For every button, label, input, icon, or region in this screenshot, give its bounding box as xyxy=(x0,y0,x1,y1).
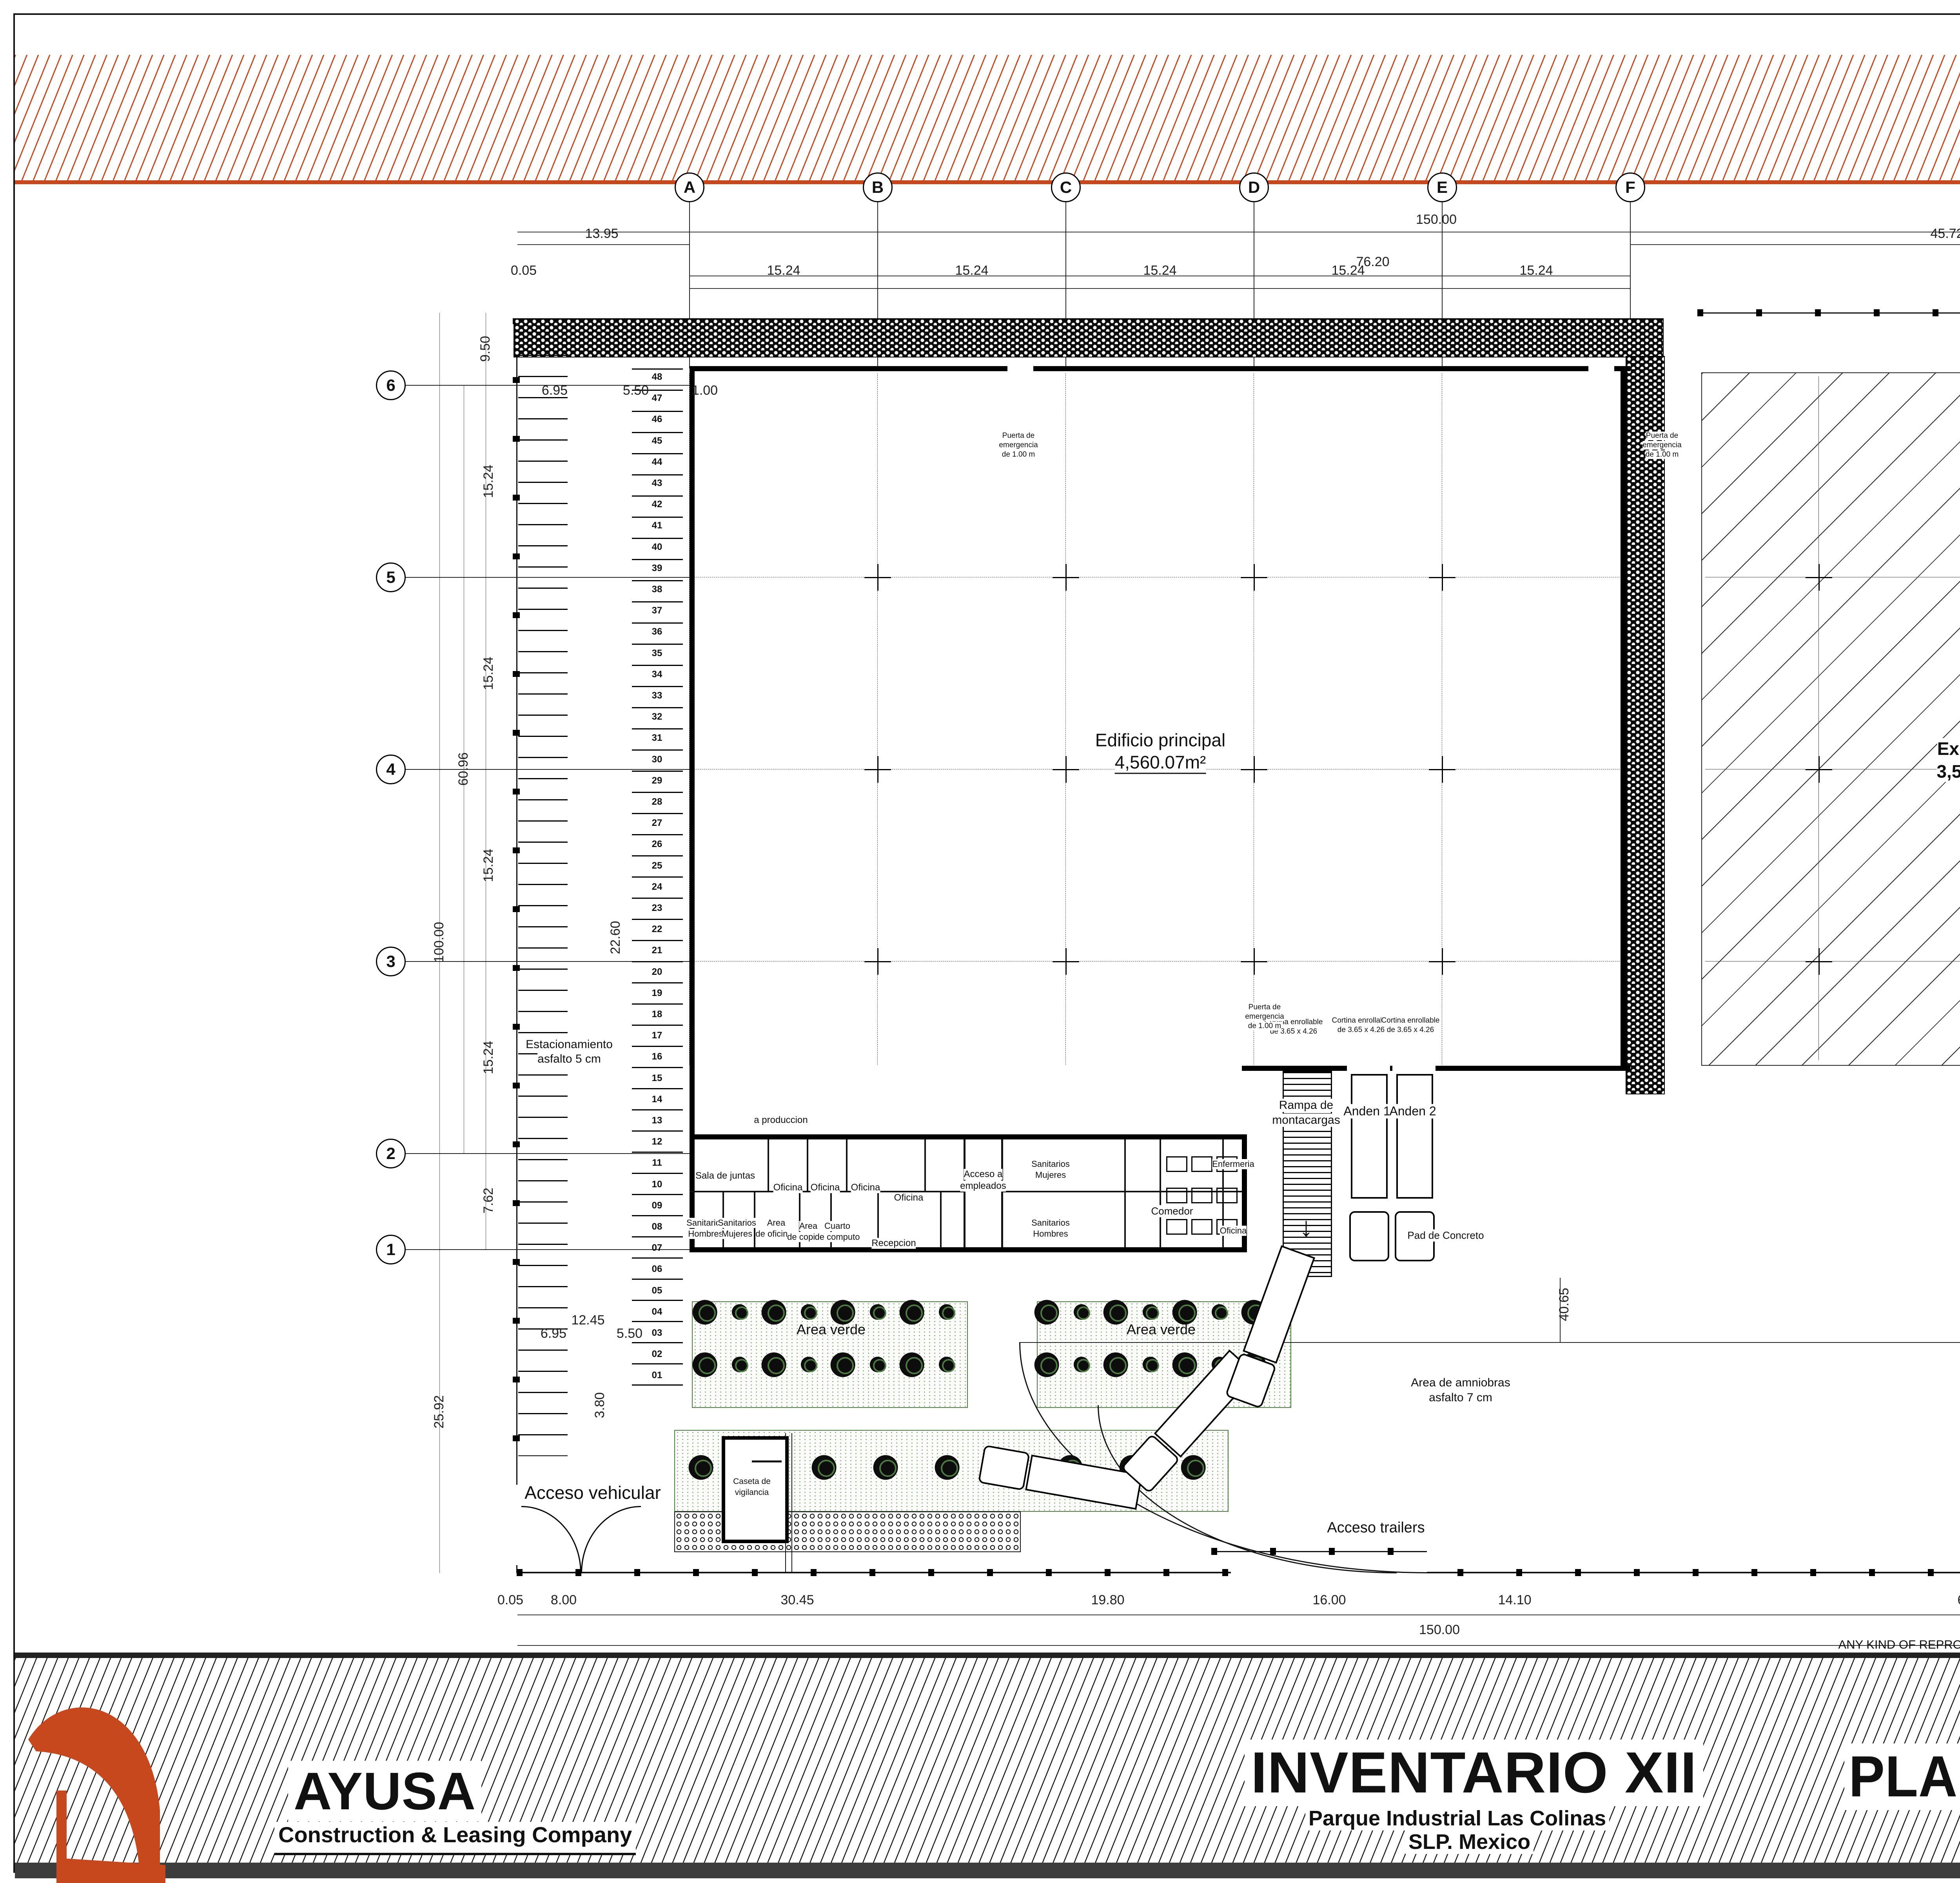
room-reception: Recepcion xyxy=(871,1238,916,1249)
tree-ring-icon xyxy=(942,1359,955,1372)
grid-line xyxy=(791,1433,792,1572)
dimension-label: 5.50 xyxy=(617,1327,642,1340)
room-office: Oficina xyxy=(894,1192,924,1203)
dimension-label: 15.24 xyxy=(482,1041,495,1074)
emergency-door-label-2: emergencia xyxy=(999,441,1038,450)
dining-table xyxy=(1191,1156,1212,1172)
parking-stall-number: 34 xyxy=(652,669,662,680)
parking-stall-number: 31 xyxy=(652,733,662,744)
gravel-band-east xyxy=(1626,356,1665,1094)
parking-stall-number: 10 xyxy=(652,1179,662,1190)
gravel-band-top xyxy=(514,318,1664,357)
parking-stall-number: 09 xyxy=(652,1200,662,1211)
expansion-area-value: 3,554.70m² xyxy=(1936,761,1960,782)
dining-table xyxy=(1166,1156,1187,1172)
grid-line xyxy=(768,1139,769,1192)
emergency-door-label-3: de 1.00 m xyxy=(1248,1022,1281,1030)
parking-stall-number: 15 xyxy=(652,1073,662,1084)
concrete-pad-label: Pad de Concreto xyxy=(1407,1230,1484,1242)
grid-line xyxy=(486,313,486,1250)
employee-access-2: empleados xyxy=(960,1181,1006,1192)
rollup-door-label-1: Cortina enrollable xyxy=(1381,1016,1440,1025)
drawing-title: PLANTA ARQUITECTONICA xyxy=(1844,1743,1960,1810)
tree-ring-icon xyxy=(906,1357,923,1374)
room-office-2: Oficina xyxy=(1220,1226,1247,1236)
parking-stall-number: 35 xyxy=(652,648,662,659)
parking-stall-number: 22 xyxy=(652,924,662,935)
drawing-sheet: ABCDEF654321Edificio principal4,560.07m²… xyxy=(0,0,1960,1883)
tree-ring-icon xyxy=(873,1306,886,1320)
dimension-label: 40.65 xyxy=(1557,1288,1571,1321)
emergency-door-label-2: emergencia xyxy=(1642,441,1681,450)
tree-ring-icon xyxy=(906,1304,923,1322)
grid-line xyxy=(517,244,690,245)
grid-line xyxy=(1160,1139,1161,1247)
parking-stall-number: 42 xyxy=(652,499,662,510)
grid-line xyxy=(1630,244,1960,245)
wall-office-bottom xyxy=(690,1247,1247,1252)
emergency-door-label-2: emergencia xyxy=(1245,1012,1284,1021)
door-gap xyxy=(1007,366,1033,371)
parking-stall-number: 06 xyxy=(652,1264,662,1275)
grid-line xyxy=(1001,1139,1003,1247)
dimension-label: 3.80 xyxy=(593,1392,606,1418)
grid-row-bubble-2: 2 xyxy=(376,1139,406,1168)
parking-stall-number: 25 xyxy=(652,860,662,871)
dimension-label: 7.62 xyxy=(482,1188,495,1214)
parking-stall-band-west xyxy=(518,355,568,1456)
ramp-arrow: ↓ xyxy=(1299,1211,1313,1243)
tree-ring-icon xyxy=(735,1359,748,1372)
ayusa-logo xyxy=(20,1681,189,1883)
dimension-label: 0.05 xyxy=(511,264,537,277)
guard-house-label-2: vigilancia xyxy=(735,1488,769,1497)
grid-row-bubble-6: 6 xyxy=(376,370,406,400)
maneuver-label-2: asfalto 7 cm xyxy=(1429,1391,1492,1404)
grid-line xyxy=(1705,961,1960,961)
grid-line xyxy=(690,288,1630,289)
parking-stall-number: 39 xyxy=(652,563,662,574)
dimension-label: 19.80 xyxy=(1091,1593,1124,1607)
room-dining: Comedor xyxy=(1151,1205,1193,1217)
dimension-label: 6.95 xyxy=(542,384,568,397)
parking-stall-number: 08 xyxy=(652,1221,662,1232)
parking-stall-number: 24 xyxy=(652,882,662,893)
dimension-label: 15.24 xyxy=(1143,264,1176,277)
grid-line xyxy=(517,1615,1960,1615)
grid-line xyxy=(1124,1139,1126,1247)
grid-column-bubble-F: F xyxy=(1615,172,1645,202)
tree-ring-icon xyxy=(879,1460,897,1477)
fence-gap xyxy=(510,1485,523,1565)
room-wc-women-2-1: Sanitarios xyxy=(1031,1159,1070,1169)
dimension-label: 15.24 xyxy=(767,264,800,277)
parking-stall-number: 16 xyxy=(652,1051,662,1062)
dimension-label: 150.00 xyxy=(1419,1623,1460,1636)
room-wc-women-2-2: Mujeres xyxy=(1035,1170,1066,1180)
truck-trailer xyxy=(1351,1074,1388,1199)
room-wc-women-1: Sanitarios xyxy=(718,1218,756,1228)
dimension-label: 16.00 xyxy=(1312,1593,1346,1607)
parking-stall-number: 20 xyxy=(652,967,662,978)
parking-stall-number: 05 xyxy=(652,1285,662,1296)
parking-stall-number: 36 xyxy=(652,626,662,637)
dock2-label: Anden 2 xyxy=(1389,1104,1436,1119)
grid-row-bubble-3: 3 xyxy=(376,947,406,976)
dimension-label: 15.24 xyxy=(955,264,988,277)
truck-cab xyxy=(978,1445,1030,1491)
room-copy-1: Area xyxy=(799,1221,817,1231)
parking-stall-number: 07 xyxy=(652,1243,662,1254)
emergency-door-label-1: Puerta de xyxy=(1249,1003,1281,1012)
parking-stall-number: 13 xyxy=(652,1115,662,1126)
dimension-label: 100.00 xyxy=(432,922,446,963)
grid-line xyxy=(924,1139,926,1192)
project-location-1: Parque Industrial Las Colinas xyxy=(1305,1806,1609,1830)
dock-opening xyxy=(1347,1066,1390,1071)
grid-line xyxy=(1705,577,1960,577)
confidential-text: ANY KIND OF REPRODUCTION, COPY AND/OR DI… xyxy=(1838,1638,1960,1652)
parking-stall-number: 14 xyxy=(652,1094,662,1105)
emergency-door-label-1: Puerta de xyxy=(1002,432,1034,440)
parking-stall-number: 32 xyxy=(652,711,662,722)
tree-ring-icon xyxy=(768,1357,785,1374)
room-wc-men-2-1: Sanitarios xyxy=(1031,1218,1070,1228)
expansion-name: Expansion xyxy=(1937,738,1960,759)
wall-office-top xyxy=(690,1134,1247,1139)
maneuver-label-1: Area de amniobras xyxy=(1411,1376,1510,1390)
grid-line xyxy=(807,1139,808,1192)
parking-stall-number: 29 xyxy=(652,775,662,786)
tree-ring-icon xyxy=(837,1357,854,1374)
parking-stall-number: 18 xyxy=(652,1009,662,1020)
parking-stall-number: 37 xyxy=(652,605,662,616)
dock1-label: Anden 1 xyxy=(1343,1104,1390,1119)
parking-stall-number: 47 xyxy=(652,393,662,404)
parking-stall-number: 38 xyxy=(652,584,662,595)
room-computer-1: Cuarto xyxy=(824,1221,850,1231)
room-office: Oficina xyxy=(851,1182,880,1193)
room-meeting: Sala de juntas xyxy=(695,1170,755,1181)
parking-stall-number: 44 xyxy=(652,457,662,468)
tree-ring-icon xyxy=(699,1357,716,1374)
guard-house-label-1: Caseta de xyxy=(733,1477,771,1486)
grid-column-bubble-D: D xyxy=(1239,172,1269,202)
wall-west xyxy=(690,366,695,1252)
room-wc-men-2-2: Hombres xyxy=(1033,1229,1068,1239)
tree-ring-icon xyxy=(699,1304,716,1322)
dimension-label: 25.92 xyxy=(432,1395,446,1428)
parking-stall-number: 33 xyxy=(652,690,662,701)
dimension-label: 60.96 xyxy=(457,752,470,785)
rollup-door-label-2: de 3.65 x 4.26 xyxy=(1338,1026,1385,1034)
parking-label-1: Estacionamiento xyxy=(526,1038,613,1051)
grid-line xyxy=(940,1192,942,1247)
truck-cab xyxy=(1349,1211,1389,1261)
title-block-bottom-bar xyxy=(15,1863,1960,1878)
grid-row-bubble-5: 5 xyxy=(376,562,406,592)
parking-stall-number: 11 xyxy=(652,1157,662,1168)
project-location-2: SLP. Mexico xyxy=(1405,1830,1534,1854)
dimension-label: 15.24 xyxy=(1519,264,1553,277)
tree-ring-icon xyxy=(695,1460,712,1477)
parking-stall-number: 17 xyxy=(652,1030,662,1041)
parking-stall-number: 45 xyxy=(652,435,662,446)
dimension-label: 45.72 xyxy=(1930,227,1960,240)
parking-stall-number: 27 xyxy=(652,818,662,829)
room-computer-2: de computo xyxy=(815,1232,860,1242)
parking-stall-number: 23 xyxy=(652,903,662,914)
main-building-name: Edificio principal xyxy=(1095,729,1225,751)
tree-ring-icon xyxy=(735,1306,748,1320)
dimension-label: 12.45 xyxy=(571,1313,604,1327)
dimension-label: 61.60 xyxy=(1957,1593,1960,1607)
tree-ring-icon xyxy=(804,1359,817,1372)
truck-trailer xyxy=(1396,1074,1433,1199)
dimension-label: 15.24 xyxy=(482,657,495,690)
door-gap xyxy=(1588,366,1614,371)
parking-stall-number: 02 xyxy=(652,1349,662,1360)
parking-stall-number: 46 xyxy=(652,414,662,425)
parking-stall-number: 19 xyxy=(652,988,662,999)
tree-ring-icon xyxy=(768,1304,785,1322)
grid-column-bubble-E: E xyxy=(1427,172,1457,202)
ayusa-logo-swoosh xyxy=(28,1707,160,1883)
dining-table xyxy=(1216,1188,1238,1203)
dimension-label: 1.00 xyxy=(692,384,718,397)
parking-stall-number: 43 xyxy=(652,478,662,489)
wall-north xyxy=(690,366,1630,371)
ramp-label-2: montacargas xyxy=(1272,1114,1340,1127)
parking-stall-number: 03 xyxy=(652,1328,662,1339)
tree-ring-icon xyxy=(941,1460,958,1477)
grid-line xyxy=(694,577,1626,577)
room-wc-women-2: Mujeres xyxy=(722,1229,752,1239)
parking-stall-number: 41 xyxy=(652,520,662,531)
title-separator xyxy=(15,1653,1960,1658)
dimension-label: 15.24 xyxy=(1331,264,1365,277)
to-production-label: a produccion xyxy=(754,1115,808,1126)
grid-line xyxy=(846,1139,848,1192)
room-office: Oficina xyxy=(773,1182,803,1193)
wall-dock-south xyxy=(1242,1066,1630,1071)
parking-stall-number: 01 xyxy=(652,1370,662,1381)
dimension-label: 15.24 xyxy=(482,464,495,498)
tree-ring-icon xyxy=(942,1306,955,1320)
grid-row-bubble-1: 1 xyxy=(376,1235,406,1264)
room-infirmary: Enfermeria xyxy=(1212,1159,1254,1169)
trailer-access-label: Acceso trailers xyxy=(1327,1520,1425,1537)
dining-table xyxy=(1191,1188,1212,1203)
dimension-label: 9.50 xyxy=(479,336,492,362)
dining-table xyxy=(1166,1219,1187,1235)
vehicle-access-label: Acceso vehicular xyxy=(524,1482,661,1503)
tree-ring-icon xyxy=(837,1304,854,1322)
parking-stall-number: 04 xyxy=(652,1306,662,1317)
room-wc-men-2: Hombres xyxy=(688,1229,723,1239)
employee-access-1: Acceso a xyxy=(964,1169,1003,1180)
grid-column-bubble-A: A xyxy=(675,172,704,202)
tree-ring-icon xyxy=(804,1306,817,1320)
parking-stall-number: 30 xyxy=(652,754,662,765)
grid-row-bubble-4: 4 xyxy=(376,755,406,784)
emergency-door-label-1: Puerta de xyxy=(1646,432,1678,440)
tree-ring-icon xyxy=(1077,1306,1090,1320)
tree-ring-icon xyxy=(1040,1304,1058,1322)
parking-stall-number: 12 xyxy=(652,1136,662,1147)
dimension-label: 8.00 xyxy=(551,1593,577,1607)
tree-ring-icon xyxy=(1178,1304,1196,1322)
grid-line xyxy=(694,961,1626,961)
parking-stall-number: 21 xyxy=(652,945,662,956)
dock-opening xyxy=(1392,1066,1436,1071)
company-subtitle: Construction & Leasing Company xyxy=(274,1822,636,1855)
dimension-label: 6.95 xyxy=(541,1327,566,1340)
dimension-label: 30.45 xyxy=(780,1593,814,1607)
gate-arc xyxy=(581,1506,641,1573)
grid-column-bubble-B: B xyxy=(863,172,893,202)
wall-east xyxy=(1621,366,1626,1071)
dimension-label: 0.05 xyxy=(497,1593,523,1607)
rollup-door-label-2: de 3.65 x 4.26 xyxy=(1387,1026,1434,1034)
company-name: AYUSA xyxy=(288,1761,481,1821)
emergency-door-label-3: de 1.00 m xyxy=(1646,450,1679,459)
parking-stall-number: 28 xyxy=(652,796,662,807)
dining-table xyxy=(1191,1219,1212,1235)
room-office: Oficina xyxy=(811,1182,840,1193)
tree-ring-icon xyxy=(818,1460,835,1477)
dimension-label: 5.50 xyxy=(623,384,649,397)
main-building-area: 4,560.07m² xyxy=(1115,752,1206,774)
tree-ring-icon xyxy=(873,1359,886,1372)
tree-ring-icon xyxy=(1215,1306,1228,1320)
dimension-label: 22.60 xyxy=(609,921,622,954)
dimension-label: 13.95 xyxy=(585,227,618,240)
tree-ring-icon xyxy=(1109,1304,1127,1322)
dining-table xyxy=(1166,1188,1187,1203)
grid-line xyxy=(517,232,1960,232)
parking-stall-number: 48 xyxy=(652,372,662,383)
grid-column-bubble-C: C xyxy=(1051,172,1081,202)
dimension-label: 150.00 xyxy=(1416,213,1457,226)
parking-label-2: asfalto 5 cm xyxy=(537,1052,601,1066)
project-title: INVENTARIO XII xyxy=(1245,1740,1703,1806)
grid-line xyxy=(785,1433,786,1572)
tree-ring-icon xyxy=(1146,1306,1159,1320)
room-open-office-1: Area xyxy=(767,1218,785,1228)
emergency-door-label-3: de 1.00 m xyxy=(1002,450,1035,459)
grid-line xyxy=(964,1139,965,1247)
grid-line xyxy=(752,1460,782,1462)
dimension-label: 14.10 xyxy=(1498,1593,1531,1607)
ramp-label-1: Rampa de xyxy=(1279,1099,1333,1112)
grid-line xyxy=(517,1645,1960,1646)
fence-posts xyxy=(1697,309,1960,316)
dimension-label: 15.24 xyxy=(482,849,495,882)
parking-stall-number: 26 xyxy=(652,839,662,850)
grid-line xyxy=(1705,769,1960,769)
gate-arc xyxy=(521,1506,581,1573)
plan-area: ABCDEF654321Edificio principal4,560.07m²… xyxy=(0,0,1960,1883)
parking-stall-number: 40 xyxy=(652,542,662,553)
